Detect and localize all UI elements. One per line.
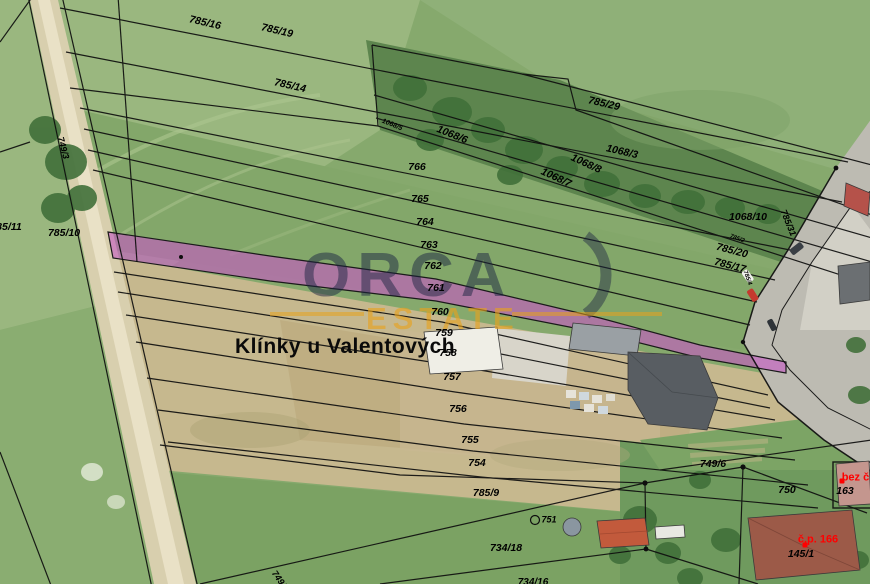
place-name-label: Klínky u Valentových <box>235 335 455 359</box>
building-small-red-roof <box>597 518 649 548</box>
building-garage <box>838 262 870 304</box>
round-tank <box>563 518 581 536</box>
building-trailer <box>655 525 685 539</box>
cadastral-map[interactable]: ORCA ESTATE Klínky u Valentových 785/167… <box>0 0 870 584</box>
building-163 <box>836 461 870 506</box>
watermark-bar-right <box>512 312 662 316</box>
watermark-estate: ESTATE <box>366 301 520 337</box>
building-house-145-1 <box>748 510 860 580</box>
watermark-bar-left <box>270 312 364 316</box>
